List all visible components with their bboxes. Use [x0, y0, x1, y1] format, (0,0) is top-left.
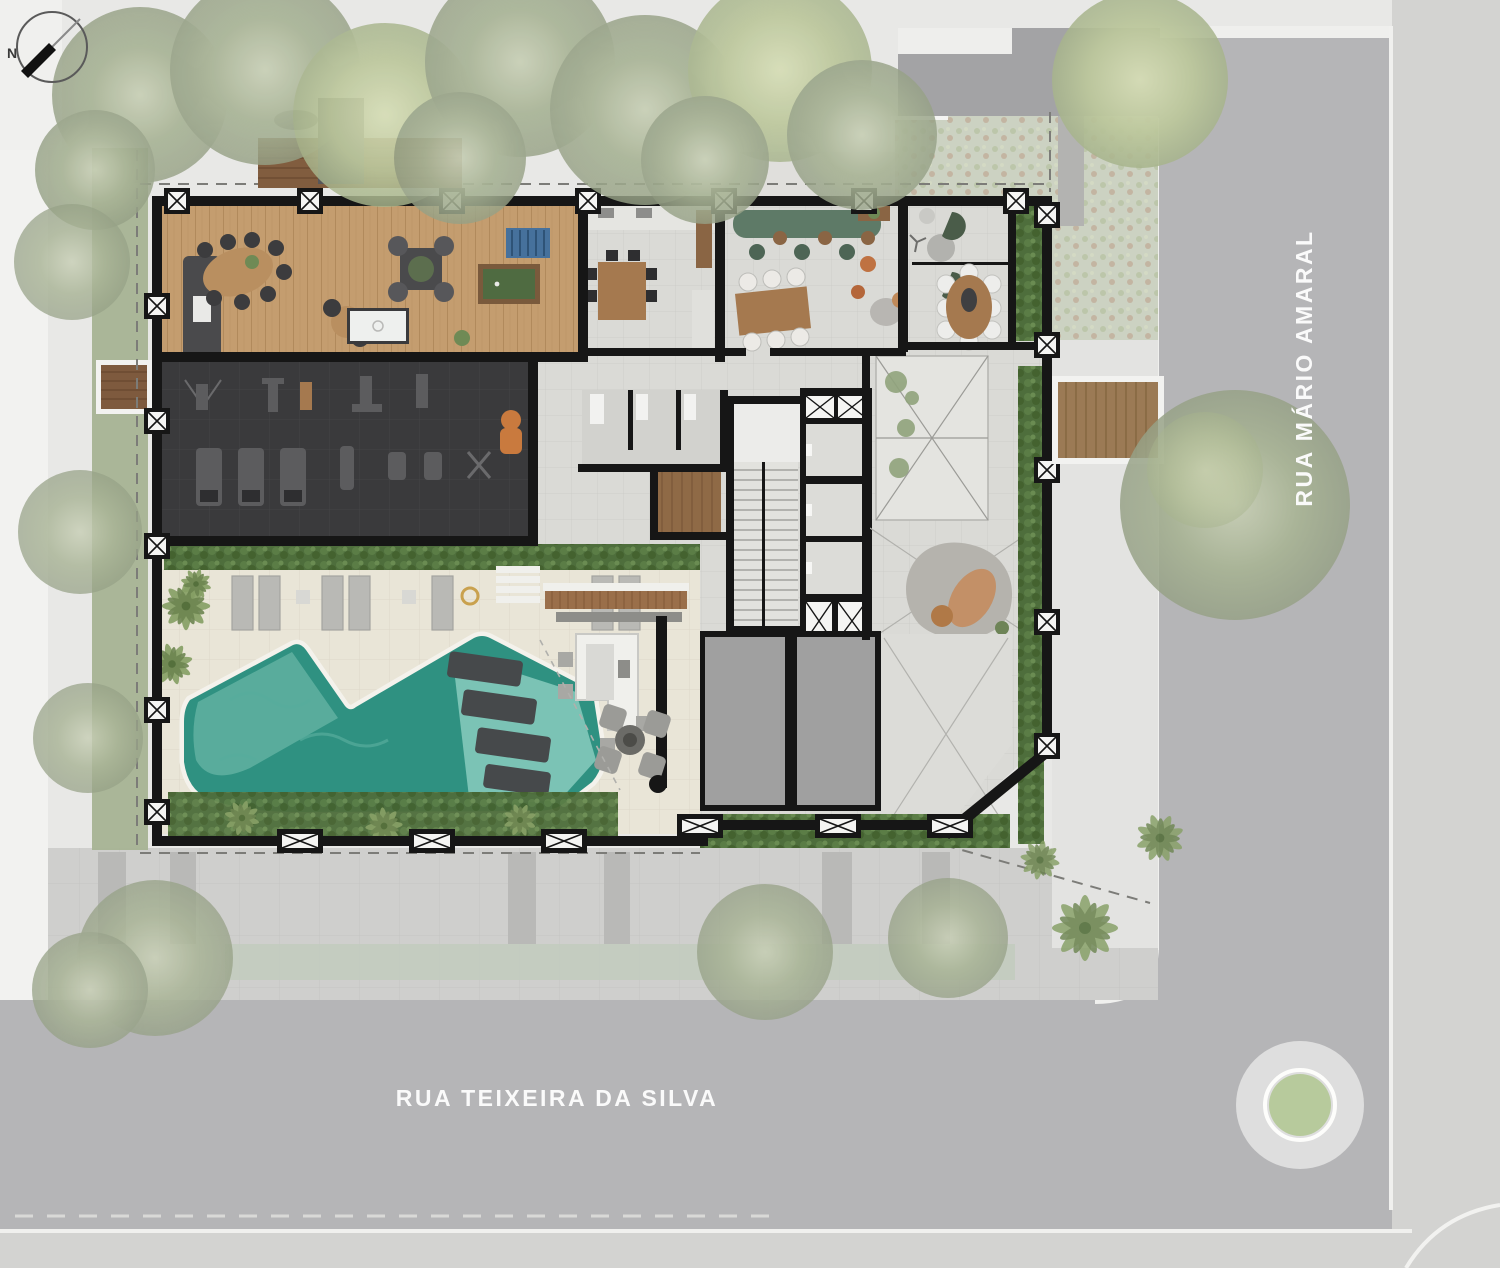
curb-bottom — [0, 1229, 1412, 1233]
site-plan: RUA TEIXEIRA DA SILVA RUA MÁRIO AMARAL N — [0, 0, 1500, 1268]
roundabout — [1236, 1041, 1364, 1169]
compass-north-label: N — [7, 45, 17, 61]
street-bottom — [0, 1000, 1392, 1232]
street-name-right: RUA MÁRIO AMARAL — [1290, 229, 1317, 506]
elevator-car — [806, 542, 864, 594]
elevator-car — [806, 424, 864, 476]
tr-dining-room — [937, 264, 1001, 350]
stair — [730, 400, 800, 628]
street-name-bottom: RUA TEIXEIRA DA SILVA — [396, 1085, 719, 1111]
hedge-under-gym — [164, 544, 700, 570]
elevator-bank — [800, 388, 872, 650]
orange-armchair — [500, 410, 522, 454]
site-plan-canvas: RUA TEIXEIRA DA SILVA RUA MÁRIO AMARAL N — [0, 0, 1500, 1268]
air-hockey-table — [347, 308, 409, 344]
elevator-car — [806, 484, 864, 536]
roundabout-island — [1269, 1074, 1331, 1136]
deck-left — [96, 360, 152, 414]
sidewalk-bottom — [0, 1232, 1500, 1268]
sidewalk-right — [1392, 0, 1500, 1232]
service-rooms — [702, 634, 1012, 830]
building — [143, 188, 1164, 853]
billiards-table — [478, 264, 540, 304]
vestibule-wood — [655, 472, 721, 534]
curb-right — [1389, 26, 1393, 1210]
